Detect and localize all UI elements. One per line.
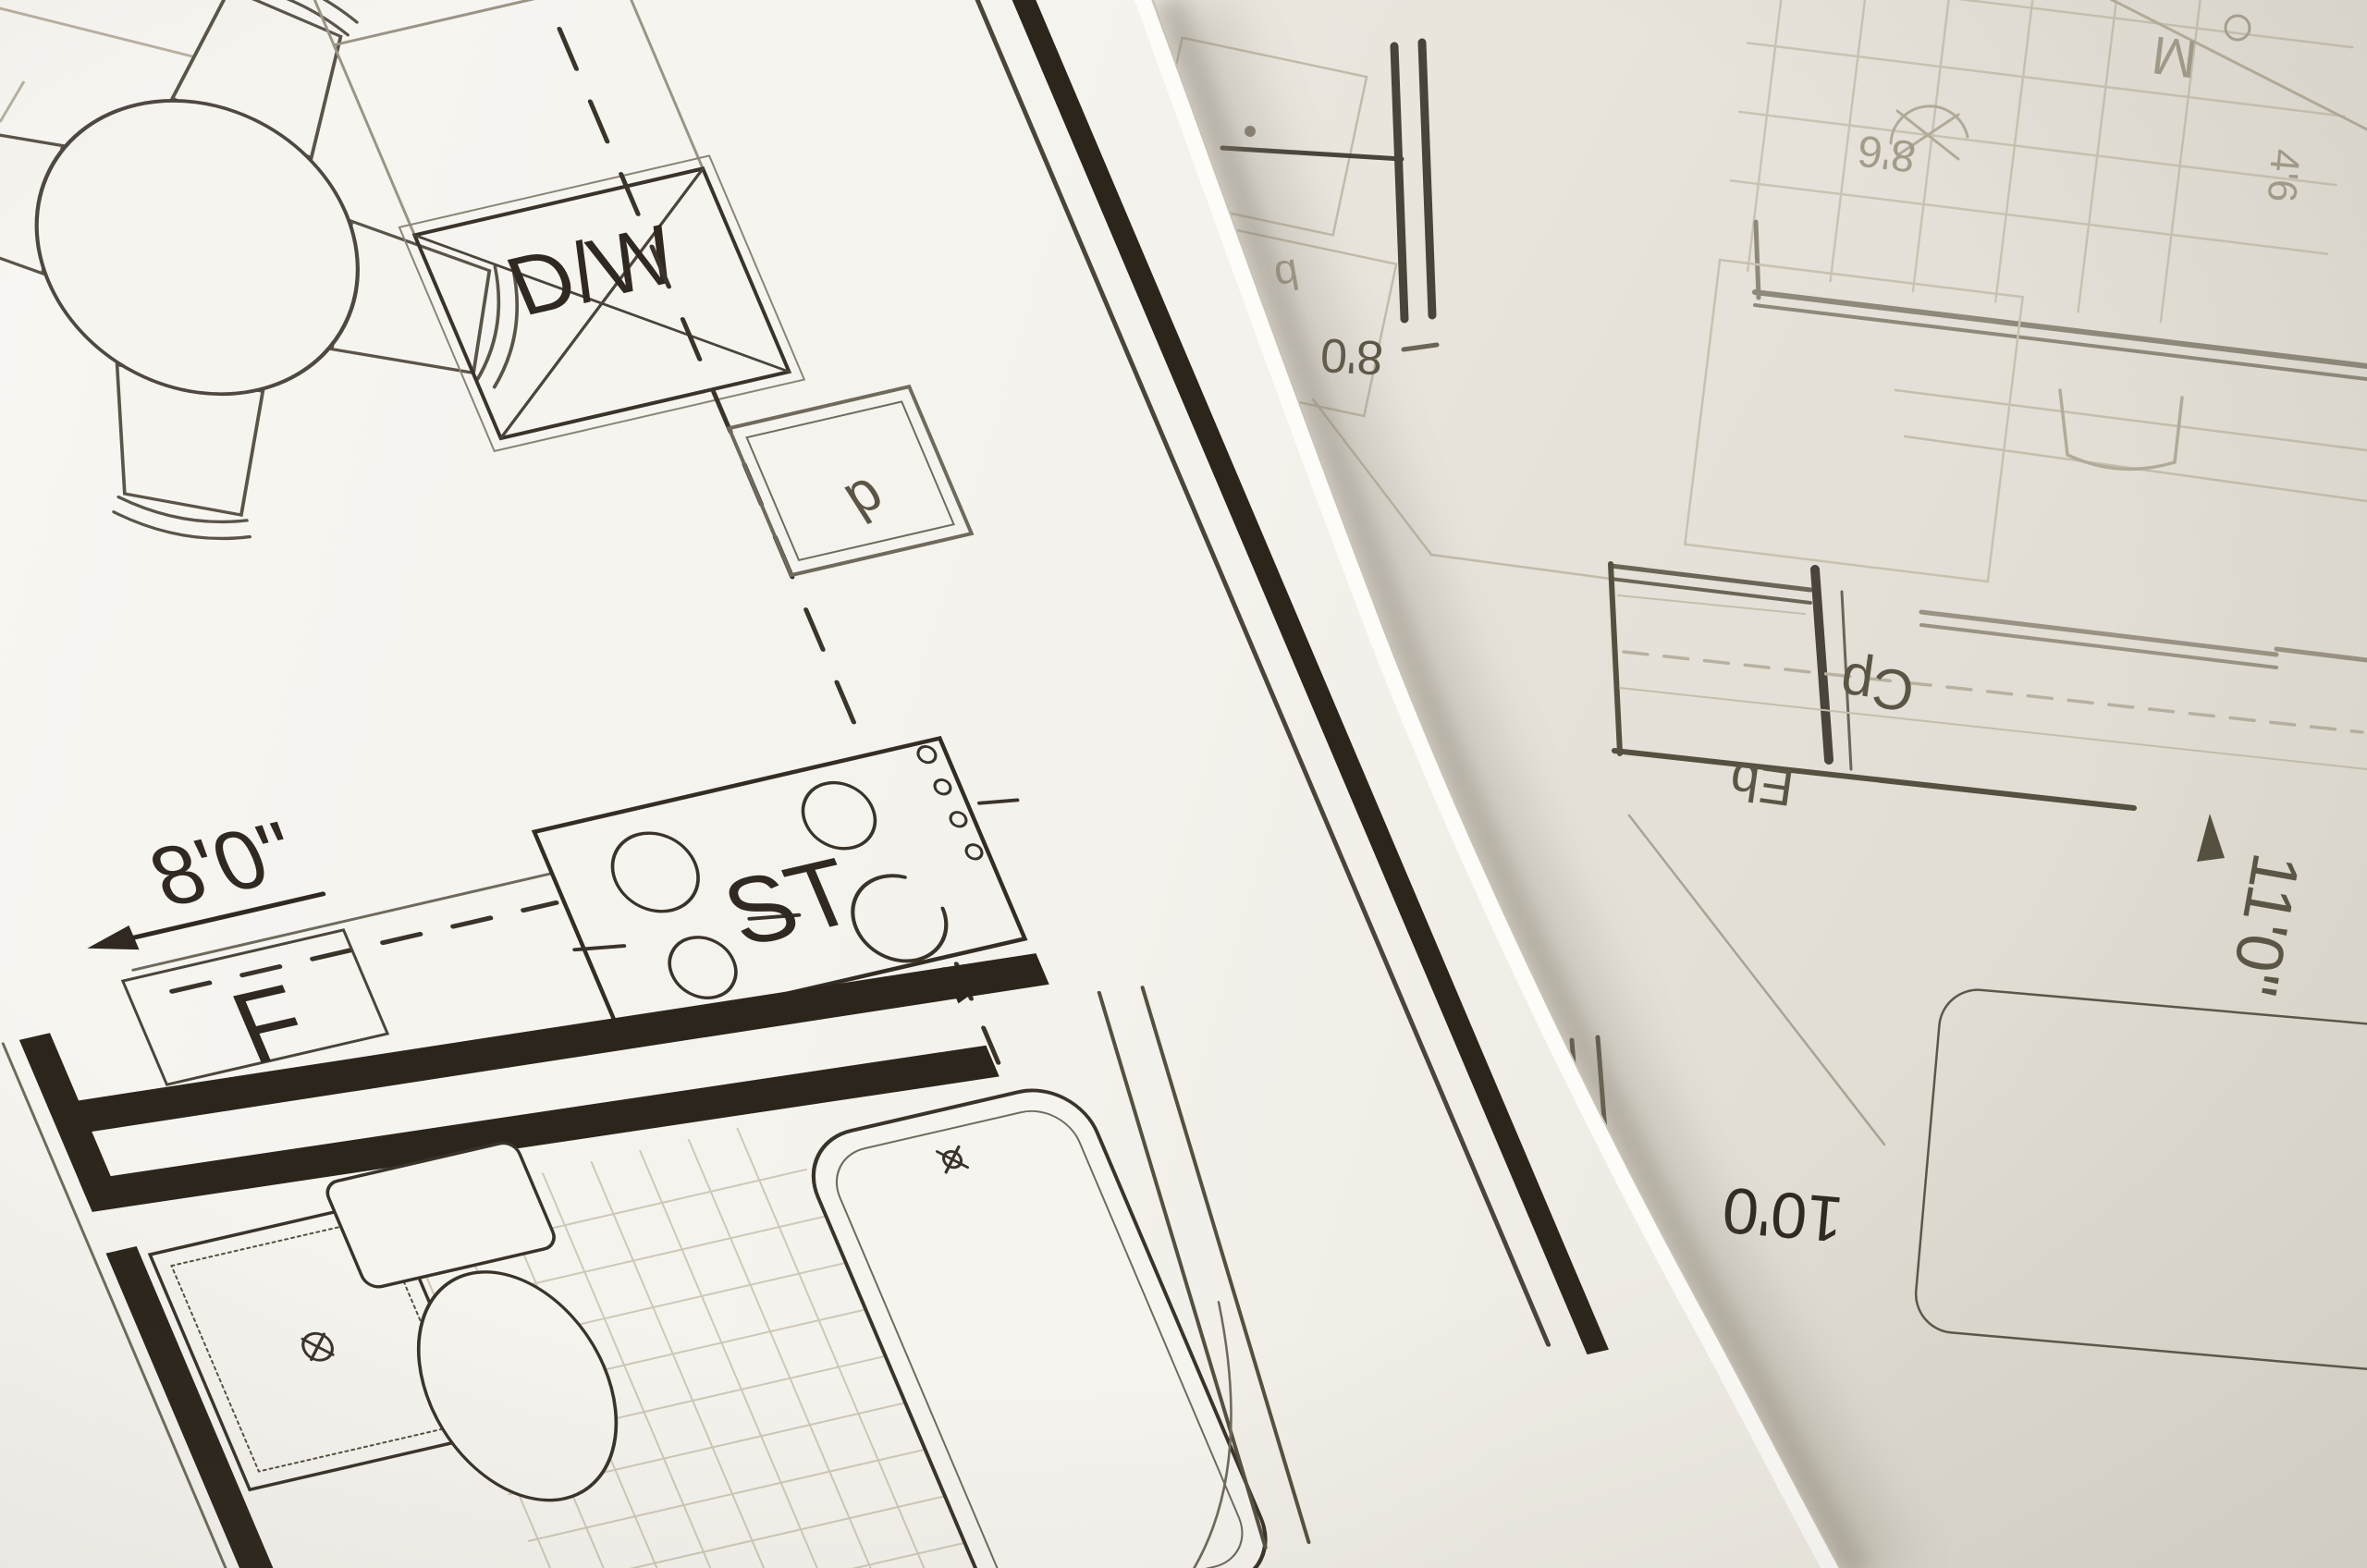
photo-vignette [0,0,2367,1568]
blueprint-photo: M 8'6 4'6 b [0,0,2367,1568]
